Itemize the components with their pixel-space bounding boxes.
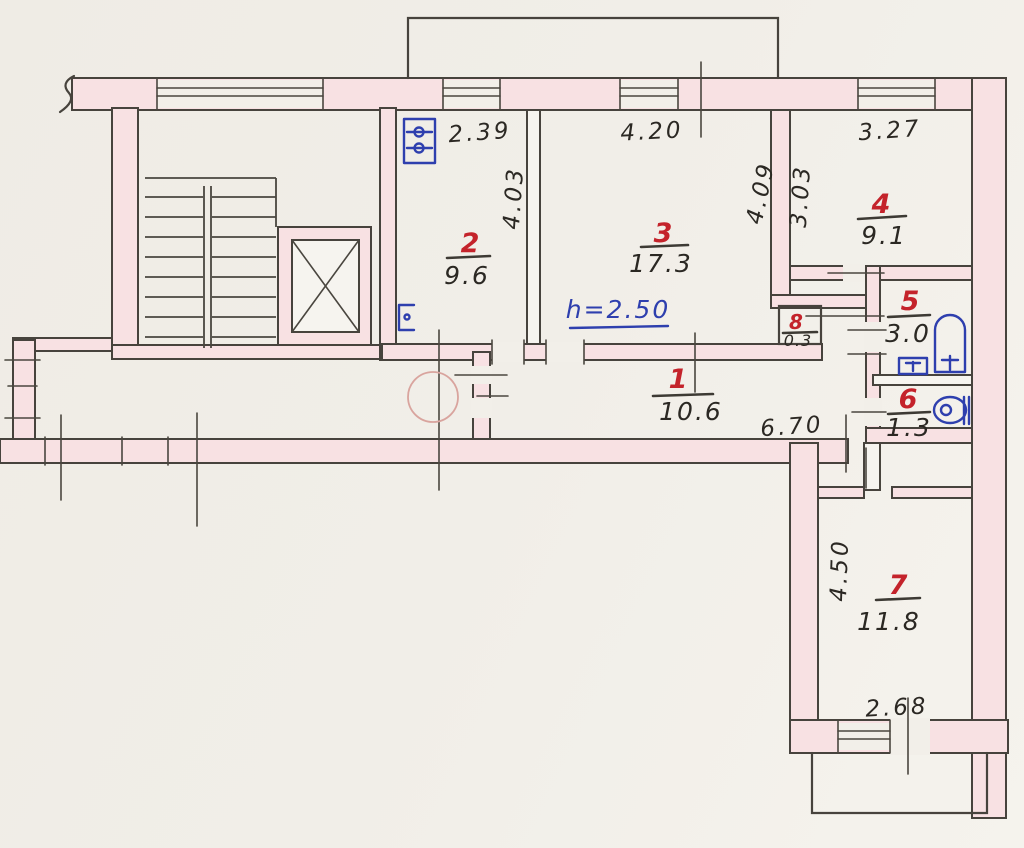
room-7-number: 7 bbox=[889, 570, 908, 601]
room-3-label: 3 17.3 bbox=[629, 218, 693, 278]
room-3-area: 17.3 bbox=[629, 249, 693, 278]
room-7-area: 11.8 bbox=[857, 607, 921, 636]
room-5-label: 5 3.0 bbox=[885, 286, 931, 348]
dim-room2-depth: 4.03 bbox=[499, 166, 529, 231]
ceiling-height-note: h=2.50 bbox=[566, 295, 670, 328]
window-staircase bbox=[157, 78, 323, 110]
dim-room4-depth: 3.03 bbox=[786, 164, 816, 229]
staircase bbox=[145, 178, 276, 348]
room-5-area: 3.0 bbox=[885, 319, 931, 348]
room-3-number: 3 bbox=[654, 218, 673, 249]
room-7-label: 7 11.8 bbox=[857, 570, 921, 636]
dim-room7-depth: 4.50 bbox=[826, 538, 854, 602]
room-6-number: 6 bbox=[899, 384, 918, 415]
room-6-area: 1.3 bbox=[886, 413, 932, 442]
room-4-number: 4 bbox=[871, 189, 891, 220]
floor-plan-drawing: 1 10.6 2 9.6 3 17.3 4 9.1 5 3.0 6 1.3 7 … bbox=[0, 0, 1024, 848]
window-room2 bbox=[443, 78, 500, 110]
room-1-number: 1 bbox=[669, 364, 688, 395]
balcony-top bbox=[408, 18, 778, 78]
faint-circle-artifact bbox=[408, 372, 458, 422]
toilet-icon bbox=[934, 397, 969, 424]
ceiling-height-text: h=2.50 bbox=[566, 295, 670, 324]
sink-icon bbox=[899, 358, 927, 374]
dim-room3-width: 4.20 bbox=[620, 117, 684, 146]
balcony-bottom bbox=[812, 753, 987, 813]
room-4-area: 9.1 bbox=[861, 221, 907, 250]
window-room3 bbox=[620, 78, 678, 110]
room-2-number: 2 bbox=[461, 228, 480, 259]
dim-room2-width: 2.39 bbox=[447, 118, 512, 148]
room-1-area: 10.6 bbox=[659, 397, 723, 426]
room-2-area: 9.6 bbox=[444, 261, 490, 290]
window-room7 bbox=[838, 720, 890, 753]
room-2-label: 2 9.6 bbox=[444, 228, 490, 290]
room-1-label: 1 10.6 bbox=[653, 364, 723, 426]
floor-plan-scan: 1 10.6 2 9.6 3 17.3 4 9.1 5 3.0 6 1.3 7 … bbox=[0, 0, 1024, 848]
electric-panel-icon bbox=[404, 119, 435, 163]
socket-icon bbox=[399, 305, 414, 330]
bathtub-icon bbox=[935, 315, 965, 372]
room-6-label: 6 1.3 bbox=[886, 384, 932, 442]
window-room4 bbox=[858, 78, 935, 110]
dim-hallway-length: 6.70 bbox=[759, 412, 824, 442]
room-8-area: 0.3 bbox=[784, 331, 812, 350]
elevator-shaft bbox=[278, 227, 371, 345]
room-5-number: 5 bbox=[901, 286, 920, 317]
dim-room4-width: 3.27 bbox=[857, 116, 922, 146]
room-4-label: 4 9.1 bbox=[858, 189, 907, 250]
dim-room7-width: 2.68 bbox=[865, 693, 929, 722]
